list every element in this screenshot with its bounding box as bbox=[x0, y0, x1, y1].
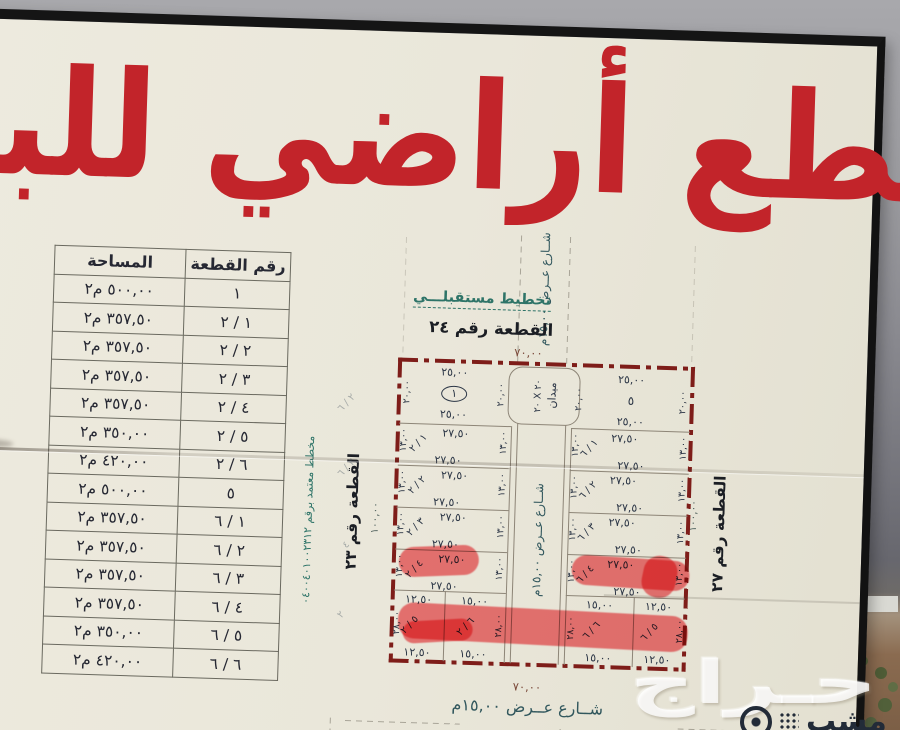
plot-label: ٢ / ٢ bbox=[406, 474, 428, 496]
sold-highlight-stroke bbox=[402, 618, 473, 644]
plot-1-label: ١ bbox=[441, 385, 467, 402]
dim-label: ٢٧,٥٠ bbox=[616, 501, 644, 515]
dim-label: ٢٧,٥٠ bbox=[442, 426, 470, 440]
dim-label: ٢٧,٥٠ bbox=[611, 432, 639, 446]
inner-street-label: شــارع عــرض ١٥,٠٠م bbox=[529, 483, 547, 597]
agency-logo: مشب bbox=[740, 704, 887, 730]
dim-label: ١٢,٥٠ bbox=[403, 645, 431, 659]
logo-dots-icon bbox=[779, 712, 799, 730]
dim-label: ٢٥,٠٠ bbox=[618, 373, 646, 387]
dim-label: ٢٧,٥٠ bbox=[430, 579, 458, 593]
dim-label: ٢٧,٥٠ bbox=[433, 495, 461, 509]
dim-label: ٢٥,٠٠ bbox=[617, 415, 645, 429]
dim-label: ١٣,٠٠ bbox=[567, 517, 579, 541]
future-plot-edge bbox=[327, 718, 331, 730]
dim-label: ١٣,٠٠ bbox=[494, 557, 506, 581]
plot-label: ١ / ٢ bbox=[407, 432, 429, 454]
dim-label: ٢٠,٠٠ bbox=[495, 383, 507, 407]
dim-label: ٢٧,٥٠ bbox=[608, 516, 636, 530]
logo-text: مشب bbox=[806, 704, 887, 730]
dim-label: ٢٥,٠٠ bbox=[440, 407, 468, 421]
plot-label: ٢ / ٦ bbox=[577, 479, 599, 501]
plot-label: ٣ / ٦ bbox=[576, 521, 598, 543]
dim-label: ٢٠,٠٠ bbox=[677, 391, 689, 415]
dim-label: ١٣,٠٠ bbox=[675, 521, 687, 545]
plot-5-label: ٥ bbox=[628, 394, 635, 408]
dim-label: ١٣,٠٠ bbox=[568, 475, 580, 499]
north-plot-edge bbox=[691, 246, 696, 368]
south-street-label: شــارع عــرض ١٥,٠٠م bbox=[451, 695, 603, 719]
dim-label: ٢٠,٠٠ bbox=[573, 387, 585, 411]
plaza-label: ميدان bbox=[545, 382, 559, 409]
dim-label: ١٥,٠٠ bbox=[459, 647, 487, 661]
future-planning-note: تخطيط مستقبلـــي bbox=[413, 289, 552, 312]
north-street-edge bbox=[566, 237, 571, 364]
dim-label: ١٣,٠٠ bbox=[678, 437, 690, 461]
dim-label: ١٥,٠٠ bbox=[584, 651, 612, 665]
dim-label: ٢٧,٥٠ bbox=[615, 543, 643, 557]
east-plot-label: القطعة رقم ٢٧ bbox=[708, 475, 730, 592]
dim-label: ١٣,٠٠ bbox=[395, 512, 407, 536]
dim-label: ٢٧,٥٠ bbox=[441, 468, 469, 482]
faint-plot-mark: ٢ bbox=[335, 609, 347, 620]
plot-label: ١ / ٦ bbox=[578, 437, 600, 459]
top-width-dimension: ٧٠,٠٠ bbox=[514, 345, 543, 360]
photo-of-sale-sign: قطع أراضي للبيع رقم القطعة المساحة ١٥٠٠,… bbox=[0, 0, 900, 730]
site-plan: شــارع عــرض ١٥,٠٠م تخطيط مستقبلـــي الق… bbox=[0, 18, 877, 730]
faint-plot-mark: ٢ / ٦ bbox=[336, 392, 358, 414]
dim-label: ١٣,٠٠ bbox=[498, 431, 510, 455]
dim-label: ١٣,٠٠ bbox=[676, 479, 688, 503]
north-plot-edge bbox=[402, 237, 407, 359]
future-plot-edge bbox=[345, 720, 460, 725]
dim-label: ٢٧,٥٠ bbox=[439, 510, 467, 524]
bottom-width-dimension: ٧٠,٠٠ bbox=[513, 679, 542, 694]
dim-label: ١٣,٠٠ bbox=[396, 470, 408, 494]
dim-label: ١٣,٠٠ bbox=[398, 428, 410, 452]
dim-label: ١٣,٠٠ bbox=[570, 433, 582, 457]
plaza-outline bbox=[507, 366, 581, 426]
sold-highlight-stroke bbox=[398, 544, 479, 577]
sign-board: قطع أراضي للبيع رقم القطعة المساحة ١٥٠٠,… bbox=[0, 8, 886, 730]
dim-label: ٢٠,٠٠ bbox=[401, 380, 413, 404]
dim-label: ١٢,٥٠ bbox=[645, 600, 673, 614]
north-plot-label: القطعة رقم ٢٤ bbox=[429, 317, 554, 340]
dim-label: ٢٥,٠٠ bbox=[441, 365, 469, 379]
dim-label: ٢٧,٥٠ bbox=[610, 474, 638, 488]
plot-label: ٣ / ٢ bbox=[405, 516, 427, 538]
plot-number-circled: ١ bbox=[441, 386, 467, 400]
dim-label: ١٥,٠٠ bbox=[586, 598, 614, 612]
west-side-dimension: ١٠٠,٠٠ bbox=[369, 502, 382, 534]
plaza-size-label: ٢٠ X ٢٠ bbox=[532, 379, 544, 412]
dim-label: ١٣,٠٠ bbox=[496, 473, 508, 497]
logo-circle-icon bbox=[740, 706, 772, 730]
dim-label: ١٣,٠٠ bbox=[495, 515, 507, 539]
